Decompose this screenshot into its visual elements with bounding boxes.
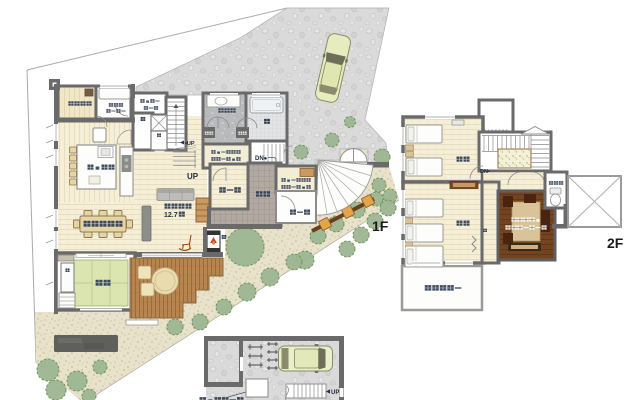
svg-text:DN●: DN● (255, 156, 268, 162)
svg-text:12.7: 12.7 (164, 212, 178, 219)
svg-text:DN•: DN• (480, 169, 490, 175)
svg-text:UP: UP (187, 172, 199, 181)
svg-text:UP: UP (331, 390, 339, 396)
svg-text:2F: 2F (607, 235, 624, 251)
svg-text:•UP: •UP (185, 141, 195, 147)
svg-text:1F: 1F (372, 218, 389, 234)
